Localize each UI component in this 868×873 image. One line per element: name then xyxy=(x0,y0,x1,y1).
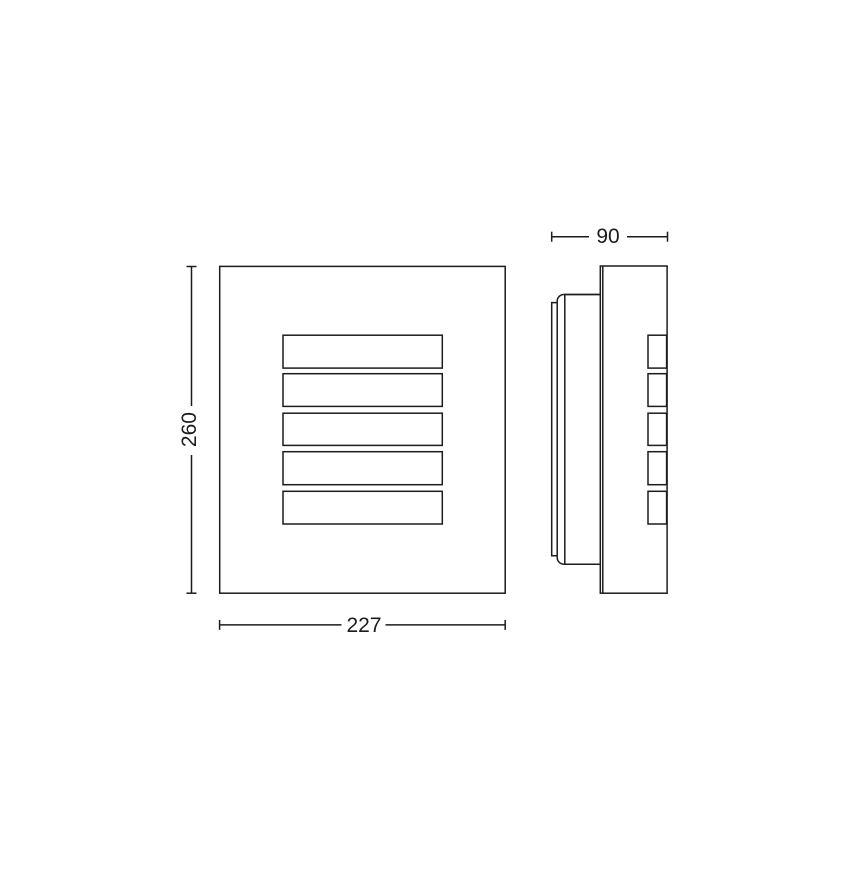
svg-text:227: 227 xyxy=(346,614,381,637)
svg-text:90: 90 xyxy=(596,225,619,248)
svg-text:260: 260 xyxy=(178,412,201,447)
